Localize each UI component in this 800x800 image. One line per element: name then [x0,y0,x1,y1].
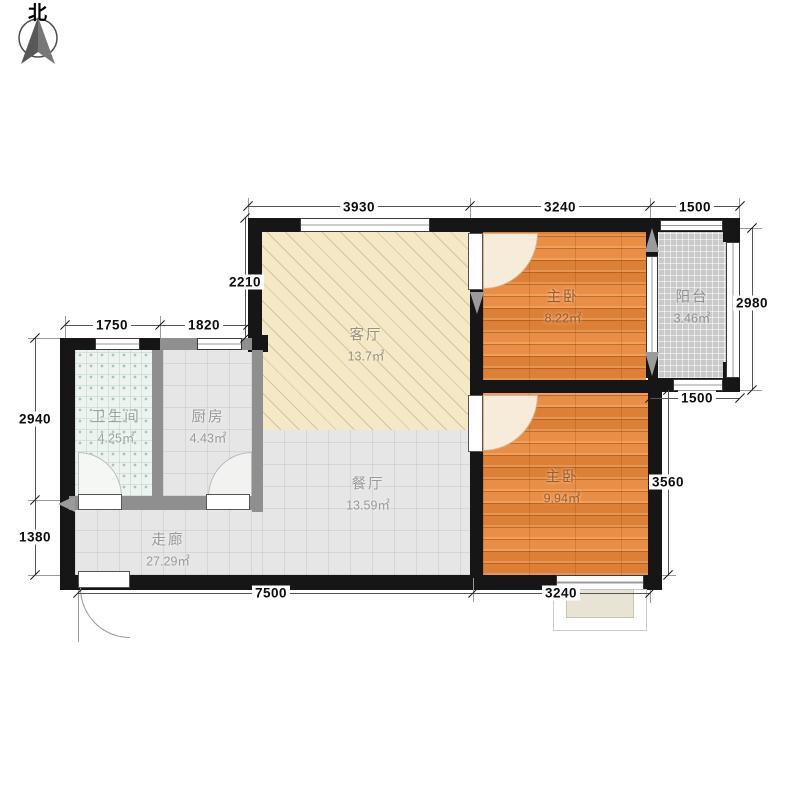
dim-top-living: 3930 [340,200,378,215]
between-bedrooms-wall [470,380,662,393]
living-room-window [300,218,430,232]
ext-line [739,198,740,218]
bathroom-name: 卫生间 [91,406,141,427]
bath-kitchen-partition [152,350,163,505]
dim-bathroom-width: 1750 [93,318,131,333]
dim-bottom-bedroom2: 3240 [542,586,580,601]
balcony-area: 3.46㎡ [674,308,711,327]
ext-line [470,198,471,218]
corridor-name: 走廊 [146,529,190,550]
dim-living-upper: 2210 [226,275,264,290]
room-label-bedroom1: 主卧 8.22㎡ [545,286,582,327]
dim-corridor-height: 1380 [16,530,54,545]
kitchen-door [206,494,250,510]
room-label-bedroom2: 主卧 9.94㎡ [544,466,581,507]
compass-north-label: 北 [28,0,47,25]
dim-bathroom-height: 2940 [16,412,54,427]
marker-arrow-down-icon [645,352,659,376]
dim-top-balcony: 1500 [676,200,714,215]
room-label-corridor: 走廊 27.29㎡ [146,529,190,570]
bedroom2-door [468,395,483,452]
kitchen-area: 4.43㎡ [190,428,227,447]
dim-balcony-bottom: 1500 [678,391,716,406]
entrance-door [78,571,130,588]
bedroom1-door [468,233,483,290]
balcony-corner-top [723,218,740,242]
dining-area: 13.59㎡ [346,495,390,514]
kitchen-name: 厨房 [190,406,227,427]
room-label-dining: 餐厅 13.59㎡ [346,473,390,514]
marker-arrow-down2-icon [470,292,484,314]
ext-line [662,575,676,576]
bathroom-door [78,494,122,510]
bathroom-window [95,338,140,350]
bedroom2-name: 主卧 [544,466,581,487]
ext-line [160,316,161,338]
bedroom1-balcony-window [646,256,658,354]
kitchen-window [197,338,242,350]
marker-arrow-up-icon [645,228,659,252]
ext-line [78,590,79,642]
floor-plan: 北 [0,0,800,800]
bedroom1-area: 8.22㎡ [545,308,582,327]
dim-right-balcony-height: 2980 [733,296,771,311]
kitchen-living-partition [252,350,263,512]
bedrooms-right-wall [648,393,662,590]
room-label-living: 客厅 13.7㎡ [348,324,385,365]
balcony-top-window [660,220,723,231]
marker-arrow-left-icon [58,496,75,512]
balcony-name: 阳台 [674,286,711,307]
dim-kitchen-width: 1820 [185,318,223,333]
room-label-bathroom: 卫生间 4.25㎡ [91,406,141,447]
balcony-bottom-window [673,379,723,391]
left-wall [60,338,75,590]
ext-line [650,198,651,218]
dim-line-top [248,206,740,207]
living-name: 客厅 [348,324,385,345]
dim-bedroom2-height: 3560 [649,475,687,490]
dim-bottom-left: 7500 [252,586,290,601]
bathroom-area: 4.25㎡ [91,428,141,447]
ext-line [65,316,66,338]
bedroom1-name: 主卧 [545,286,582,307]
dining-name: 餐厅 [346,473,390,494]
entrance-door-arc [80,588,130,638]
bedroom2-area: 9.94㎡ [544,488,581,507]
room-label-kitchen: 厨房 4.43㎡ [190,406,227,447]
compass: 北 [8,0,72,72]
living-area: 13.7㎡ [348,346,385,365]
room-label-balcony: 阳台 3.46㎡ [674,286,711,327]
dim-top-bedroom1: 3240 [541,200,579,215]
corridor-area: 27.29㎡ [146,551,190,570]
